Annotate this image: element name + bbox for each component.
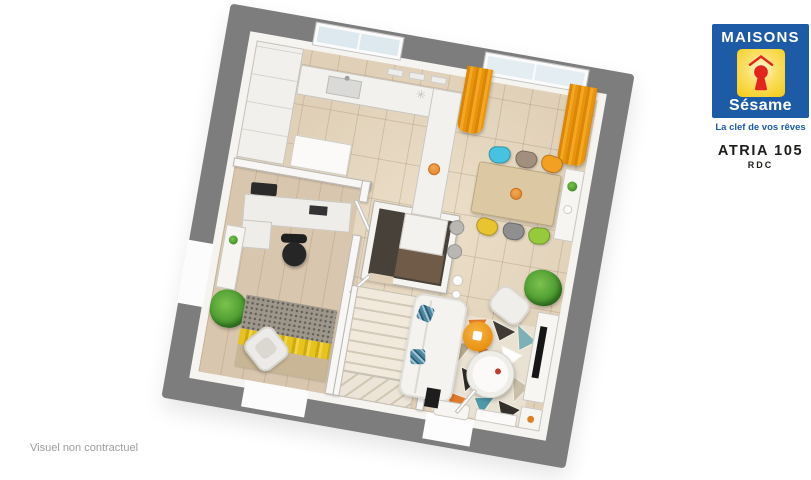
floorplan-interior: ✳ <box>189 31 607 441</box>
brand-tagline: La clef de vos rêves <box>712 122 809 133</box>
sofa-pillow <box>410 349 425 364</box>
plan-floor-label: RDC <box>712 160 809 170</box>
disclaimer-text: Visuel non contractuel <box>30 442 138 454</box>
plan-title: ATRIA 105 <box>712 143 809 159</box>
side-cabinet <box>518 406 543 431</box>
maisons-sesame-logo: MAISONS Sésame <box>712 24 809 118</box>
brand-block: MAISONS Sésame La clef de vos rêves ATRI… <box>712 24 809 170</box>
ceiling-light-deco: ✳ <box>413 87 429 103</box>
keyhole-icon <box>739 51 783 95</box>
table-deco <box>495 368 502 375</box>
left-window-sill <box>177 240 214 308</box>
printer <box>250 182 277 196</box>
logo-yellow-square <box>737 49 785 97</box>
logo-text-sesame: Sésame <box>712 97 809 115</box>
page: ✳ <box>0 0 811 480</box>
logo-text-maisons: MAISONS <box>712 29 809 46</box>
floorplan-frame: ✳ <box>161 3 634 468</box>
dining-chair-cyan <box>488 146 511 164</box>
dining-chair-green <box>528 227 551 245</box>
kitchen-bar-table <box>399 213 449 256</box>
laptop <box>309 205 328 216</box>
